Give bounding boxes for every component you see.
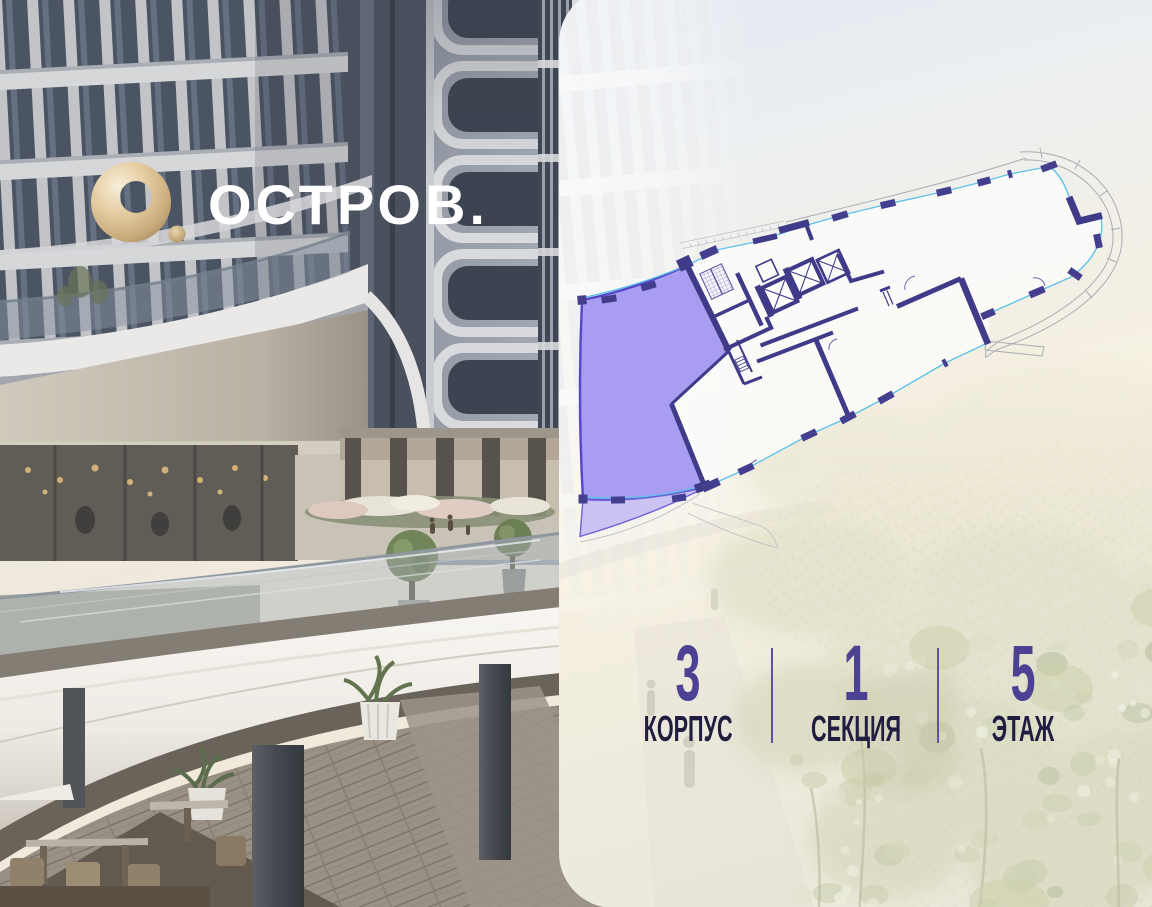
svg-text:ОСТРОВ.: ОСТРОВ. (208, 173, 489, 236)
